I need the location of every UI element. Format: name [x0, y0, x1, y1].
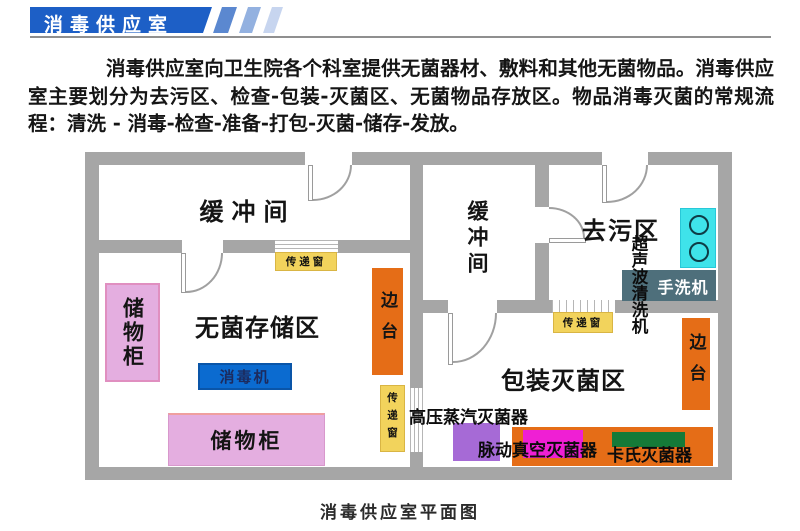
- banner-stripe-2: [239, 7, 261, 33]
- cabinet-bottom: 储物柜: [168, 413, 325, 466]
- wall-right: [718, 152, 732, 480]
- banner-stripe-3: [263, 7, 283, 33]
- wall-bottom: [85, 467, 732, 480]
- door-leaf-buffer-mid: [549, 238, 586, 243]
- wall-middle-2: [410, 452, 423, 467]
- door-arc-packing: [453, 313, 497, 363]
- room-label-packing: 包装灭菌区: [501, 361, 626, 396]
- transfer-window-mid-label: 传递窗: [385, 392, 400, 445]
- intro-paragraph: 消毒供应室向卫生院各个科室提供无菌器材、敷料和其他无菌物品。消毒供应室主要划分为…: [28, 55, 774, 138]
- wall-inner-left-1: [99, 240, 182, 253]
- wall-buffer-right-2: [535, 243, 549, 300]
- cabinet-bottom-label: 储物柜: [211, 425, 283, 455]
- transfer-window-right-label: 传递窗: [563, 315, 604, 330]
- wall-top-2: [352, 152, 602, 165]
- transfer-window-mid: 传递窗: [380, 385, 405, 452]
- banner-stripe-1: [213, 7, 237, 33]
- room-label-buffer-left: 缓冲间: [185, 192, 310, 227]
- side-table-right-label: 边台: [684, 333, 709, 395]
- side-table-left-label: 边台: [375, 291, 400, 353]
- door-arc-storage: [186, 253, 223, 293]
- ultrasonic-cleaner-label: 超声波清洗机: [626, 235, 650, 334]
- disinfector-label: 消毒机: [219, 366, 270, 387]
- transfer-window-top: 传递窗: [275, 252, 337, 271]
- room-label-buffer-mid: 缓冲间: [462, 200, 492, 278]
- sink-circle-2: [689, 242, 709, 262]
- wall-inner-right-2: [497, 300, 552, 313]
- page-title: 消毒供应室: [44, 10, 174, 37]
- pulse-vacuum-label: 脉动真空灭菌器: [478, 436, 597, 461]
- room-label-sterile-storage: 无菌存储区: [195, 308, 320, 343]
- wall-left: [85, 152, 99, 480]
- side-table-right: 边台: [682, 318, 710, 410]
- document-page: 消毒供应室 消毒供应室向卫生院各个科室提供无菌器材、敷料和其他无菌物品。消毒供应…: [0, 0, 800, 531]
- wall-inner-right-1: [423, 300, 448, 313]
- side-table-left: 边台: [372, 268, 403, 375]
- floor-plan: 缓冲间 缓冲间 去污区 无菌存储区 包装灭菌区 储物柜 消毒机 储物柜 边台 手…: [85, 145, 735, 485]
- transfer-window-top-label: 传递窗: [286, 254, 327, 269]
- disinfector: 消毒机: [198, 363, 292, 390]
- plan-caption: 消毒供应室平面图: [0, 498, 800, 523]
- door-arc-buffer-mid: [549, 207, 585, 238]
- cabinet-left-label: 储物柜: [118, 297, 148, 369]
- autoclave-label: 高压蒸汽灭菌器: [409, 403, 528, 428]
- cabinet-left: 储物柜: [105, 283, 160, 382]
- wall-buffer-right-1: [535, 165, 549, 207]
- sink-circle-1: [689, 215, 709, 235]
- wall-top-1: [85, 152, 305, 165]
- wall-middle-1: [410, 165, 423, 388]
- door-arc-top-right: [607, 165, 648, 203]
- wall-inner-left-2: [223, 240, 275, 253]
- door-arc-top-left: [313, 165, 352, 201]
- cassette-label: 卡氏灭菌器: [607, 441, 692, 466]
- header-rule: [30, 36, 771, 38]
- hand-washer-label: 手洗机: [657, 274, 708, 298]
- transfer-window-right: 传递窗: [553, 312, 613, 333]
